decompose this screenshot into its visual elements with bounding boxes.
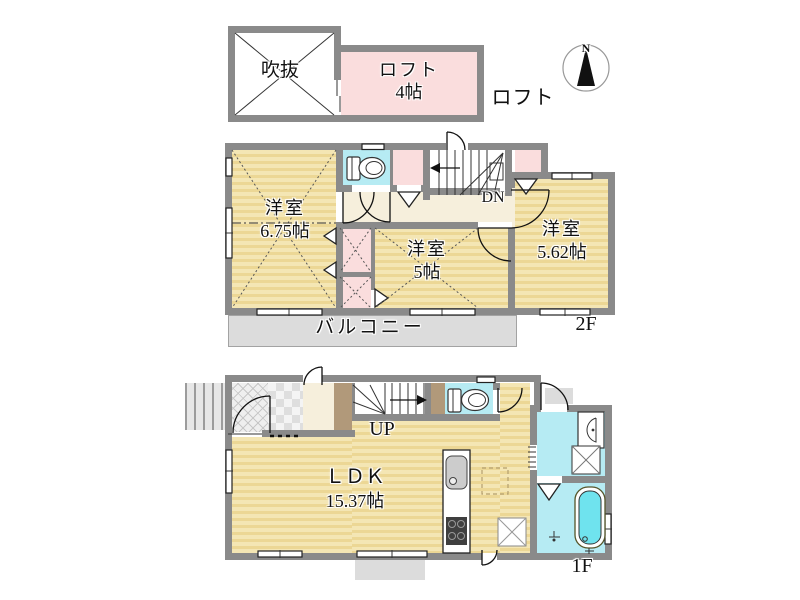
stairs-down-label: DN <box>474 189 512 207</box>
genkan-entry <box>268 383 303 432</box>
void-label: 吹抜 <box>230 60 330 82</box>
room-562-size: 5.62帖 <box>517 242 607 263</box>
approach-steps <box>185 383 225 430</box>
loft-room-name: ロフト <box>341 60 477 81</box>
room-675-size: 6.75帖 <box>234 221 336 242</box>
closet-center-lower <box>340 277 371 308</box>
terrace-step <box>355 560 425 580</box>
loft-room-size: 4帖 <box>341 82 477 103</box>
room-562-name: 洋室 <box>517 219 607 240</box>
loft-level-label: ロフト <box>490 87 556 110</box>
shoe-storage <box>334 383 352 430</box>
ldk-name: ＬＤＫ <box>295 466 415 489</box>
room-toilet-1f <box>445 383 493 415</box>
room-675-name: 洋室 <box>234 198 336 219</box>
stairs-up-label: UP <box>358 418 406 441</box>
compass-north-label: N <box>576 42 596 56</box>
closet-center-upper <box>340 228 371 272</box>
balcony-label: バルコニー <box>270 317 470 339</box>
hall-1f <box>303 383 335 432</box>
room-washroom <box>537 412 605 476</box>
storage-by-toilet <box>431 383 445 421</box>
back-door-landing <box>545 388 573 404</box>
level-1f-label: 1F <box>560 555 604 578</box>
stairs-1f <box>353 383 427 414</box>
ldk-size: 15.37帖 <box>295 491 415 512</box>
room-ldk-strip <box>493 421 500 553</box>
entrance-porch <box>228 383 268 432</box>
level-2f-label: 2F <box>564 313 608 336</box>
closet-by-stairs-left <box>393 150 423 185</box>
floor-plan: 吹抜 ロフト 4帖 ロフト N 洋室 6.75帖 洋室 5帖 洋室 5.62帖 … <box>0 0 800 600</box>
room-5-size: 5帖 <box>382 262 472 283</box>
closet-by-stairs-right <box>515 150 541 172</box>
room-toilet-2f <box>343 150 390 185</box>
room-5-name: 洋室 <box>382 239 472 260</box>
room-ldk-east <box>500 383 530 553</box>
room-bathroom <box>537 483 605 553</box>
